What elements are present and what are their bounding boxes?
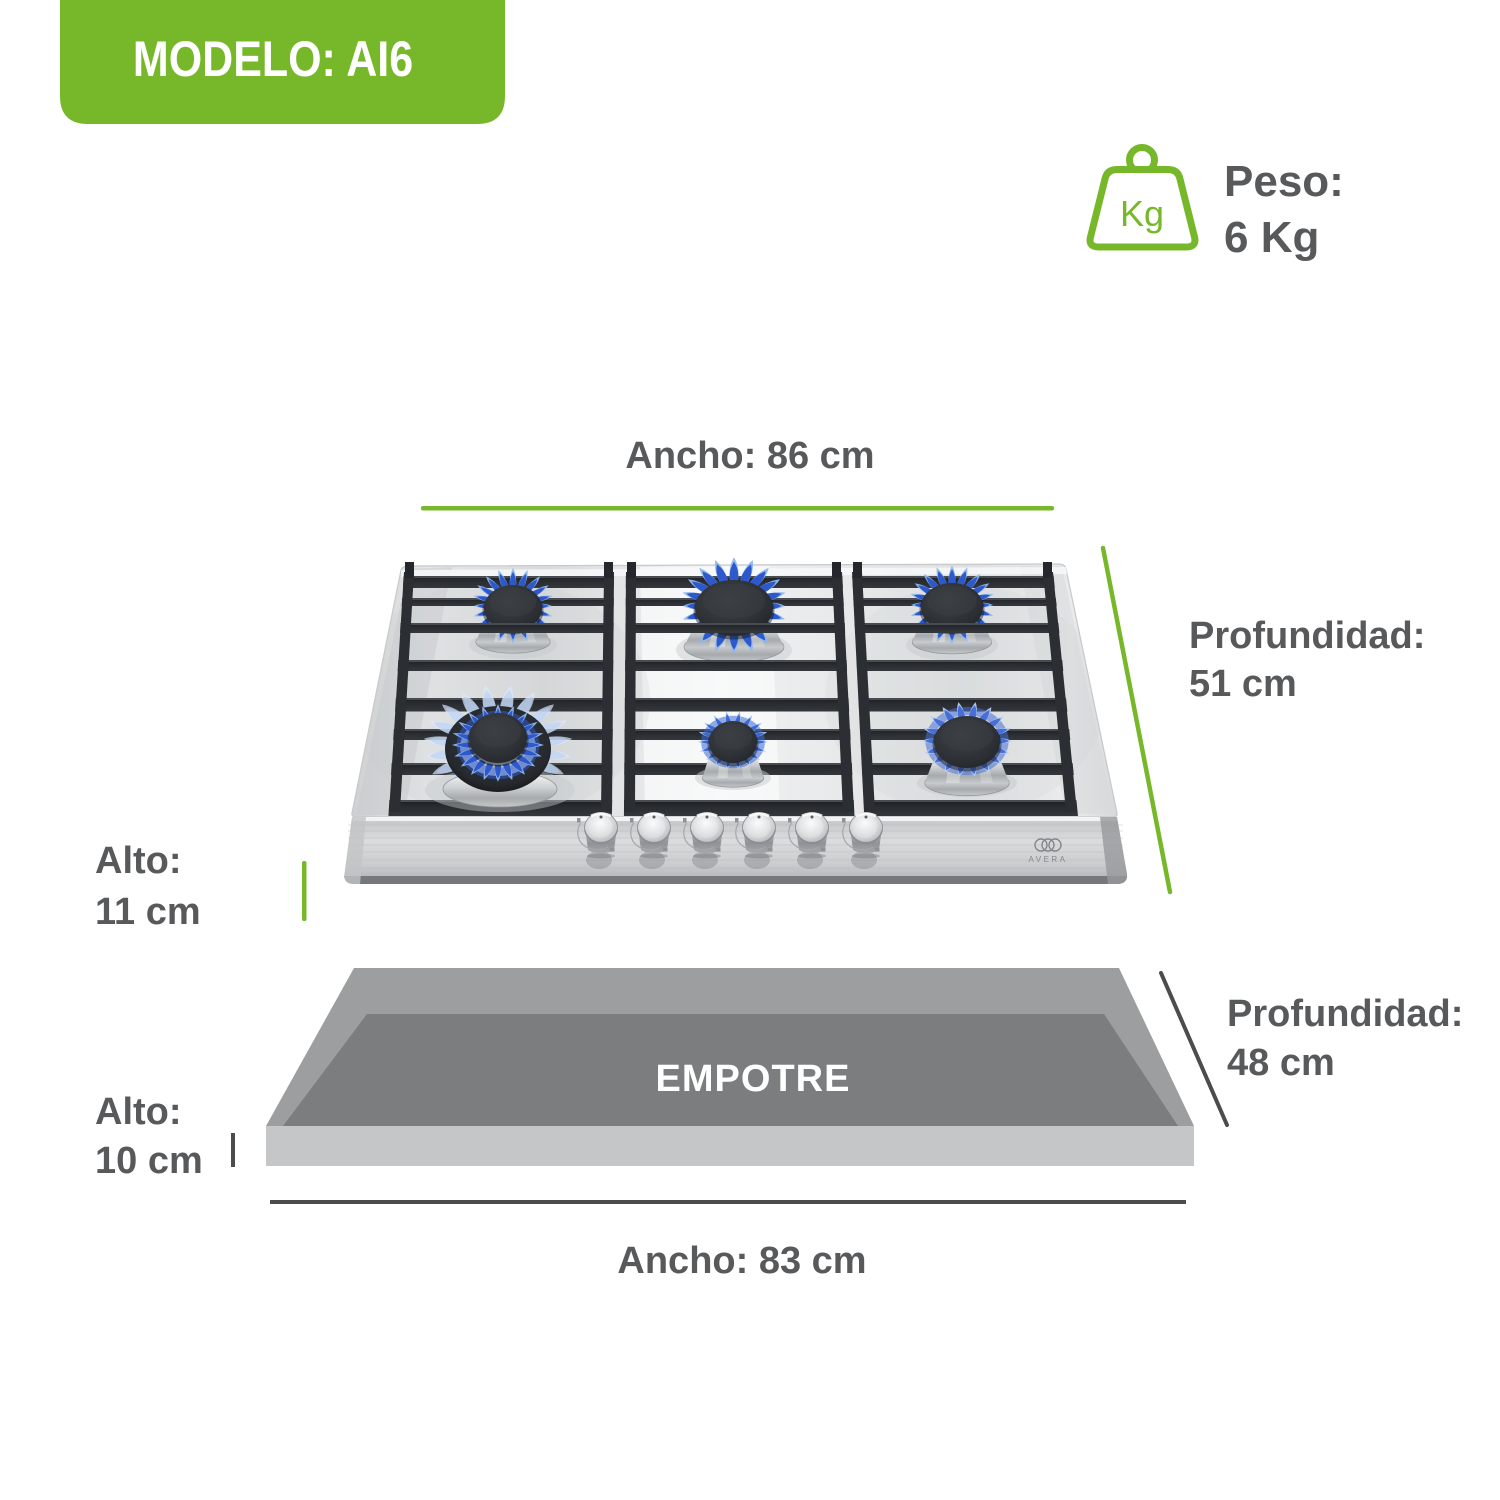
svg-text:Ancho: 83 cm: Ancho: 83 cm	[617, 1240, 866, 1282]
svg-text:Profundidad:: Profundidad:	[1227, 993, 1463, 1035]
svg-text:MODELO: AI6: MODELO: AI6	[133, 31, 413, 87]
svg-text:Kg: Kg	[1120, 193, 1164, 234]
svg-text:11 cm: 11 cm	[95, 891, 201, 933]
svg-text:Profundidad:: Profundidad:	[1189, 615, 1425, 657]
svg-text:EMPOTRE: EMPOTRE	[656, 1058, 851, 1100]
svg-text:6 Kg: 6 Kg	[1224, 213, 1319, 262]
svg-text:AVERA: AVERA	[1028, 855, 1067, 864]
svg-text:Alto:: Alto:	[95, 1091, 182, 1133]
svg-text:Alto:: Alto:	[95, 840, 182, 882]
svg-text:10 cm: 10 cm	[95, 1140, 203, 1182]
svg-text:Ancho: 86 cm: Ancho: 86 cm	[625, 435, 874, 477]
svg-text:51 cm: 51 cm	[1189, 663, 1297, 705]
svg-text:48 cm: 48 cm	[1227, 1042, 1335, 1084]
svg-text:Peso:: Peso:	[1224, 157, 1344, 206]
